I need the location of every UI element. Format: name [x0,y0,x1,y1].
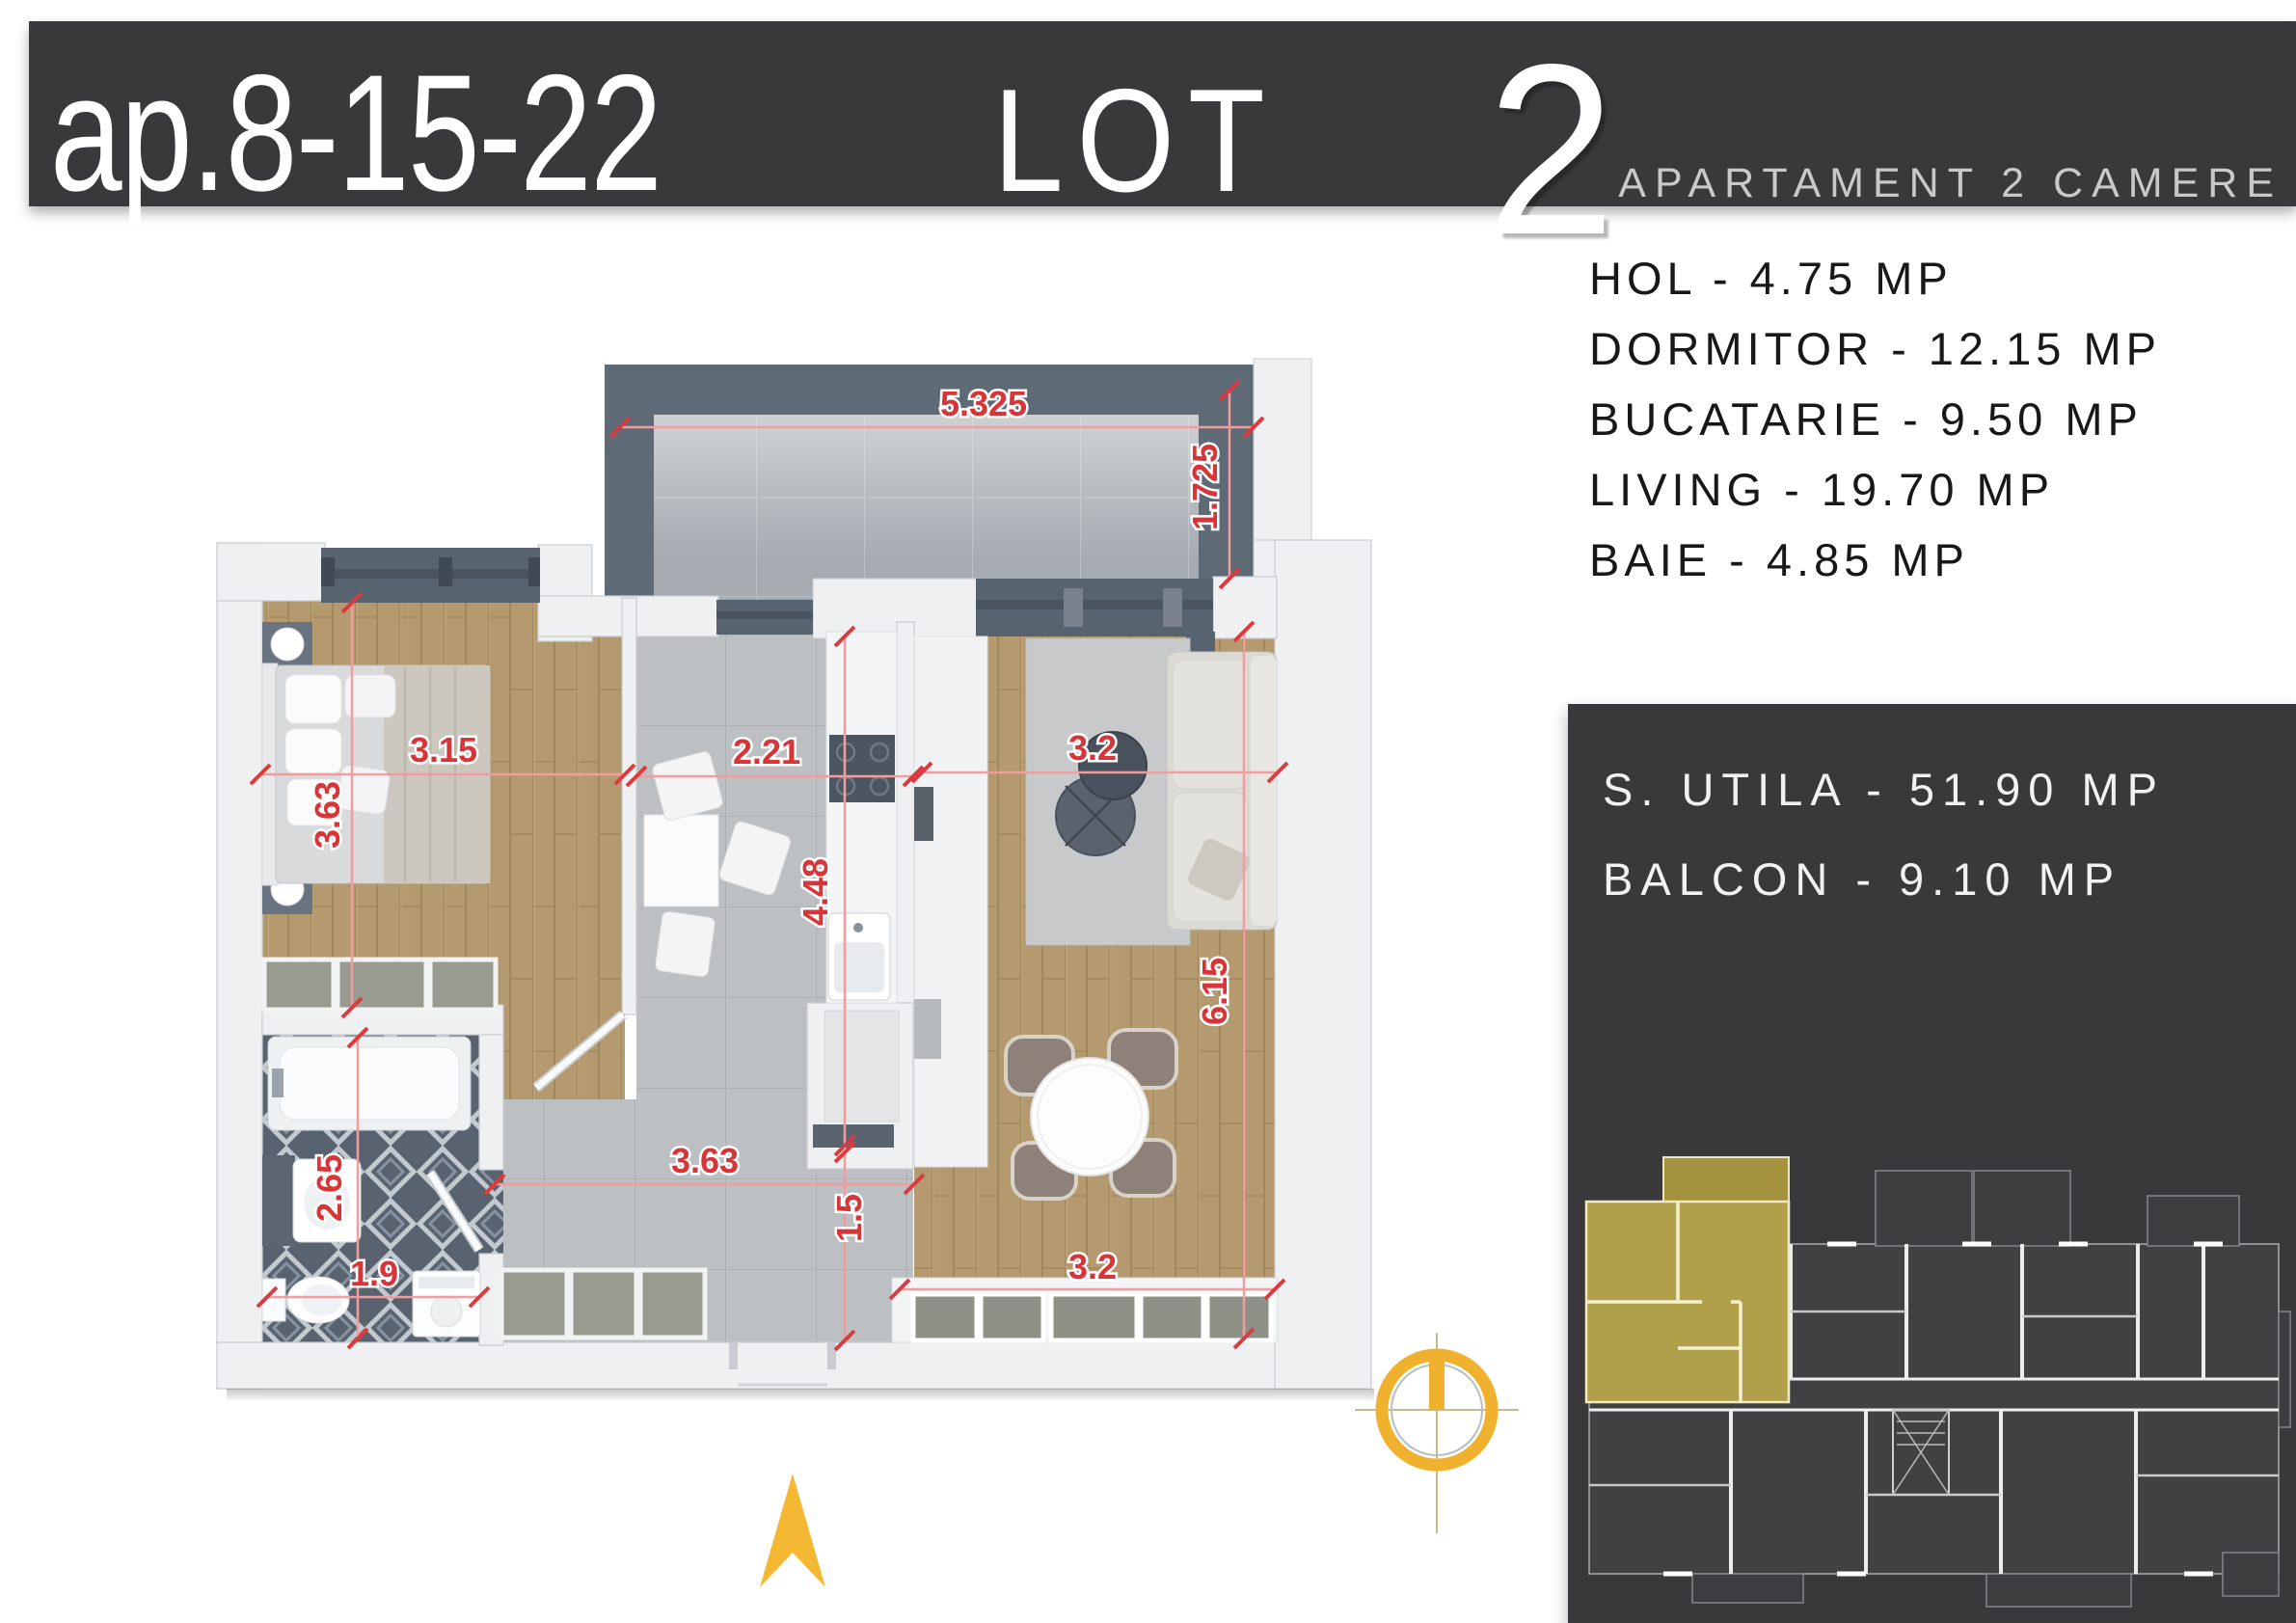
nightstand [262,864,312,914]
hall-wardrobe [571,1270,636,1338]
dim-hall-width: 3.63 [671,1141,739,1180]
dim-bedroom-width: 3.15 [410,730,477,770]
dim-living-window-width: 3.2 [1068,1247,1117,1286]
kitchen-furniture [644,632,897,1003]
coffee-table [1079,732,1147,799]
bedroom-wardrobe [264,960,496,1010]
bathroom-door [430,1173,479,1250]
kitchen-living-wall [897,622,914,1003]
pillow [345,675,395,717]
entrance-frame [729,1342,738,1369]
room-area-hol: HOL - 4.75 MP [1589,243,2161,313]
stove [829,735,895,802]
living-floor [914,629,1275,1345]
balcony-door-block [813,579,977,638]
hall-niche-wall [807,1003,913,1169]
bed [276,665,490,883]
balcony-walls [605,365,1254,622]
bathroom-floor [262,1035,503,1345]
balcony-floor [654,415,1199,622]
balcony-area: BALCON - 9.10 MP [1603,834,2165,924]
dim-living-width: 3.2 [1068,728,1117,768]
bottom-wall [217,1342,1371,1389]
bathtub [268,1037,471,1130]
bathroom-sink [293,1159,361,1242]
lamp [271,628,304,661]
room-area-baie: BAIE - 4.85 MP [1589,525,2161,595]
north-arrow-icon [760,1474,825,1587]
balcony [605,359,1317,629]
rug [1026,638,1190,945]
hall-furniture [501,1014,836,1385]
nightstand [262,622,312,666]
toilet [287,1277,349,1323]
dim-kitchen-width: 2.21 [733,732,800,771]
room-area-bucatarie: BUCATARIE - 9.50 MP [1589,384,2161,454]
living-furniture [892,636,1278,1342]
walls [217,540,1371,1389]
apartment-number: ap.8-15-22 [50,50,661,216]
chair [718,820,793,896]
dim-bath-depth: 2.65 [310,1154,349,1222]
blanket [384,665,490,883]
room-area-dormitor: DORMITOR - 12.15 MP [1589,313,2161,384]
washing-machine [413,1271,480,1337]
kitchen-counter [826,632,897,1003]
dim-living-depth: 6.15 [1195,958,1234,1025]
bathroom-furniture [262,1037,480,1337]
sofa [1167,652,1277,930]
bedroom-door [536,1014,623,1088]
dim-bedroom-depth: 3.63 [308,781,347,849]
summary-panel: S. UTILA - 51.90 MP BALCON - 9.10 MP [1568,704,2296,1623]
useful-area: S. UTILA - 51.90 MP [1603,744,2165,834]
hall-floor [503,1003,913,1342]
bedroom-furniture [262,622,496,1010]
lot-number: 2 [1487,29,1615,272]
hall-wardrobe [501,1270,567,1338]
apartment-type-subtitle: APARTAMENT 2 CAMERE [1618,160,2282,207]
dim-kitchen-depth: 4.48 [796,858,835,926]
dining-chair [1006,1037,1073,1095]
pillow [287,779,341,825]
left-wall [217,543,262,1389]
pillow [285,675,341,723]
window-walls [321,548,1215,668]
room-floors [262,598,1275,1345]
chair [651,750,723,822]
pillow [337,765,391,816]
kitchen-floor [636,622,913,1008]
living-windows [892,1278,1278,1342]
dimension-lines: 5.325 1.725 3.15 3.63 2.21 4.48 3.2 6.15… [251,381,1287,1350]
room-area-list: HOL - 4.75 MP DORMITOR - 12.15 MP BUCATA… [1589,243,2161,595]
dim-hall-depth: 1.5 [829,1194,869,1242]
coffee-table [1056,776,1135,855]
lamp [271,873,304,906]
chair [655,911,716,978]
bed-headboard [262,663,278,885]
pillow [285,729,341,773]
hall-wardrobe [640,1270,705,1338]
sofa-pillow [1185,836,1252,903]
dining-chair [1013,1143,1076,1199]
dim-balcony-width: 5.325 [940,384,1027,423]
dining-table [1031,1058,1148,1176]
bathroom-top-wall [262,1005,503,1035]
bath-faucet [272,1068,284,1097]
room-area-living: LIVING - 19.70 MP [1589,454,2161,525]
lot-label: LOT [993,68,1279,214]
bedroom-kitchen-wall [622,598,636,1014]
tv-unit [914,636,987,1167]
dim-balcony-depth: 1.725 [1185,444,1225,530]
toilet-tank [262,1279,285,1321]
entrance-frame [827,1342,836,1369]
compass-icon [1355,1333,1519,1533]
bedroom-floor [262,598,625,1099]
kitchen-sink [828,913,890,1000]
dining-set [1006,1030,1176,1199]
dim-bath-width: 1.9 [350,1254,398,1293]
kitchen-table [644,815,718,906]
right-wall [1275,540,1371,1389]
dining-chair [1109,1030,1176,1088]
balcony-side-wall [1254,359,1311,595]
summary-lines: S. UTILA - 51.90 MP BALCON - 9.10 MP [1603,744,2165,924]
dining-chair [1111,1140,1175,1196]
page: ap.8-15-22 LOT 2 APARTAMENT 2 CAMERE HOL… [0,0,2296,1623]
title-banner: ap.8-15-22 LOT 2 APARTAMENT 2 CAMERE [29,21,2296,206]
